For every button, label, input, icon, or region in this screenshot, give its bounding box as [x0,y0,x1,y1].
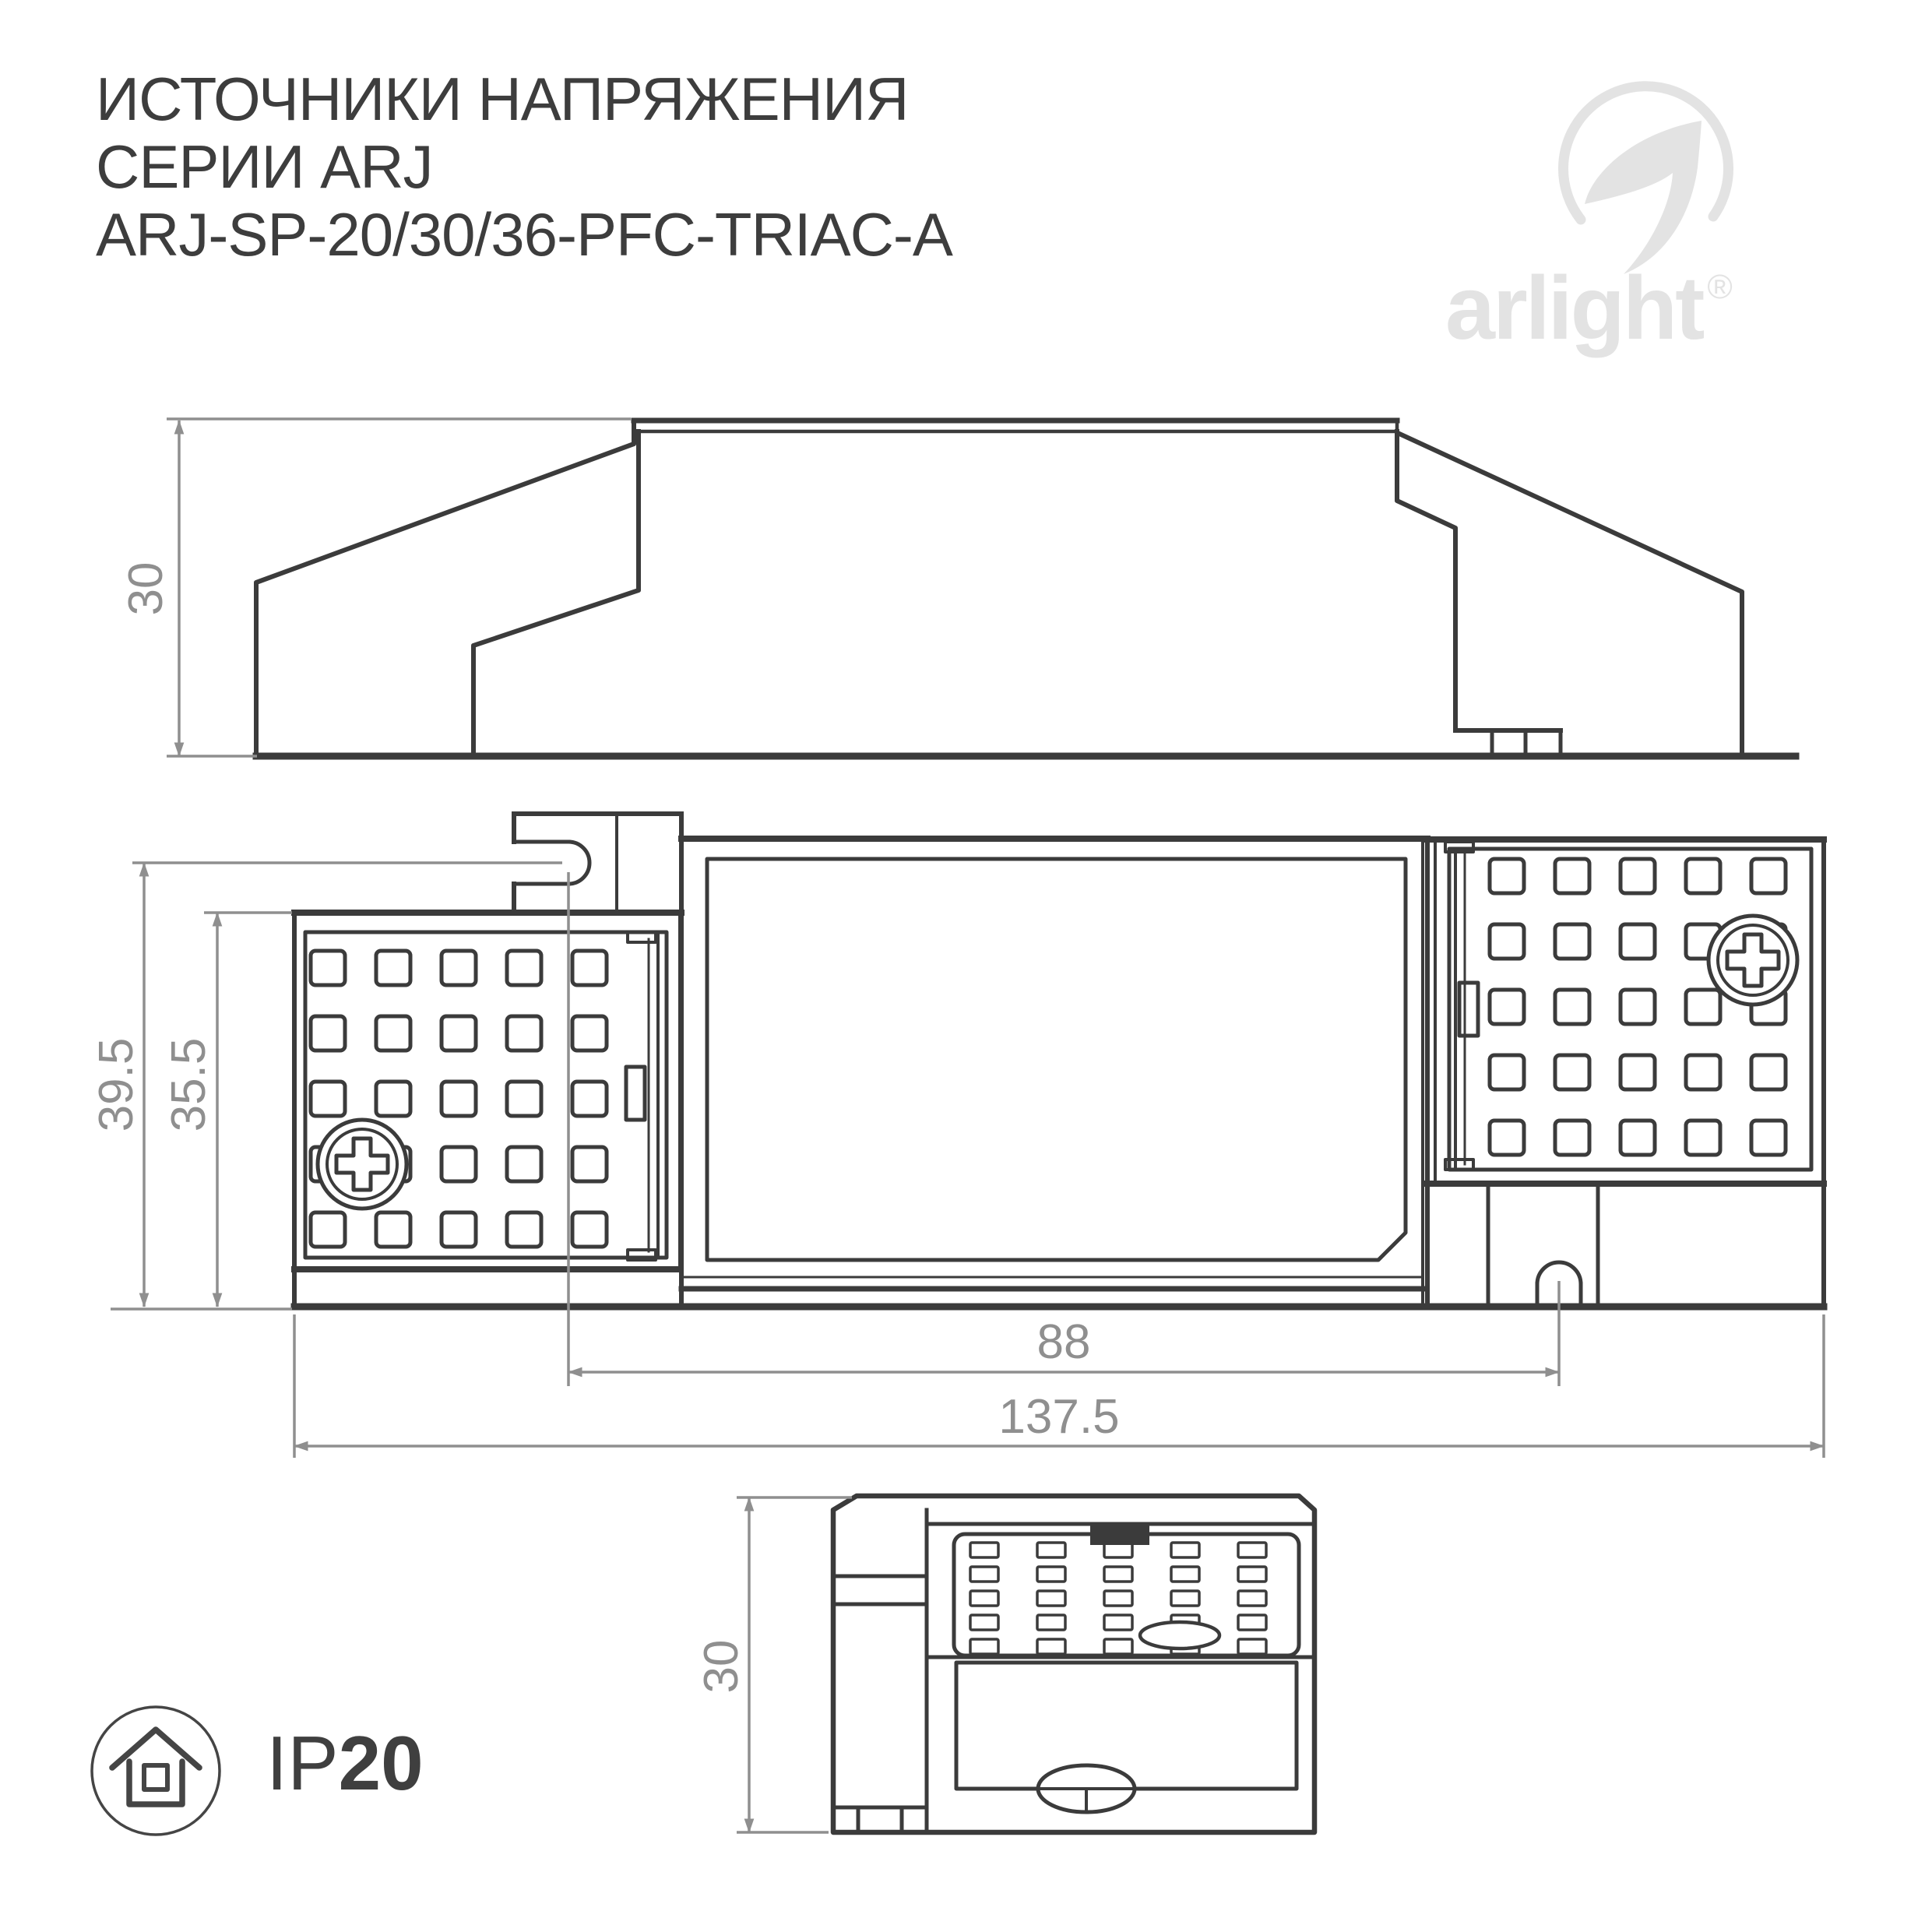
datasheet-page: ИСТОЧНИКИ НАПРЯЖЕНИЯ СЕРИИ ARJ ARJ-SP-20… [0,0,1932,1932]
badge-circle [92,1707,220,1835]
right-terminal-cover [1427,839,1824,1184]
front-vent-grid [970,1543,1266,1654]
mounting-tab-bottom-right [1488,1184,1598,1307]
cover-latch [1459,983,1478,1036]
right-cover-vent-grid [1490,859,1786,1155]
arlight-swoosh-icon [1564,86,1729,274]
house-icon [112,1730,199,1804]
front-lower-panel [956,1663,1297,1789]
left-terminal-cover [294,913,681,1269]
side-view [256,421,1796,756]
plan-overall-length-dim-label: 137.5 [998,1390,1119,1444]
cover-tick [628,932,656,942]
side-feet [1492,730,1561,756]
label-area [707,859,1406,1260]
side-right-outer-profile [1399,434,1742,756]
front-height-dim-label: 30 [695,1640,748,1694]
side-left-outer-profile [256,421,634,756]
cover-latch [626,1067,645,1120]
ip-rating-badge [92,1707,220,1835]
plan-depth-body-dim-label: 35.5 [162,1038,216,1132]
front-view [833,1496,1314,1832]
front-feet [833,1807,927,1832]
technical-drawing: 30 [0,0,1932,1932]
side-height-dim-label: 30 [119,562,173,616]
cover-tick [628,1250,656,1260]
front-vent-panel [954,1534,1299,1656]
phillips-screw-icon [1709,916,1797,1005]
central-body [681,839,1427,1307]
plan-mounting-distance-dim-label: 88 [1037,1315,1091,1369]
side-right-inner-profile [1397,431,1561,730]
phillips-screw-icon [318,1120,406,1209]
side-left-inner-profile [473,431,639,756]
plan-depth-overall-dim-label: 39.5 [90,1038,143,1132]
front-knockout-upper [1140,1622,1219,1649]
plan-view [294,814,1824,1307]
